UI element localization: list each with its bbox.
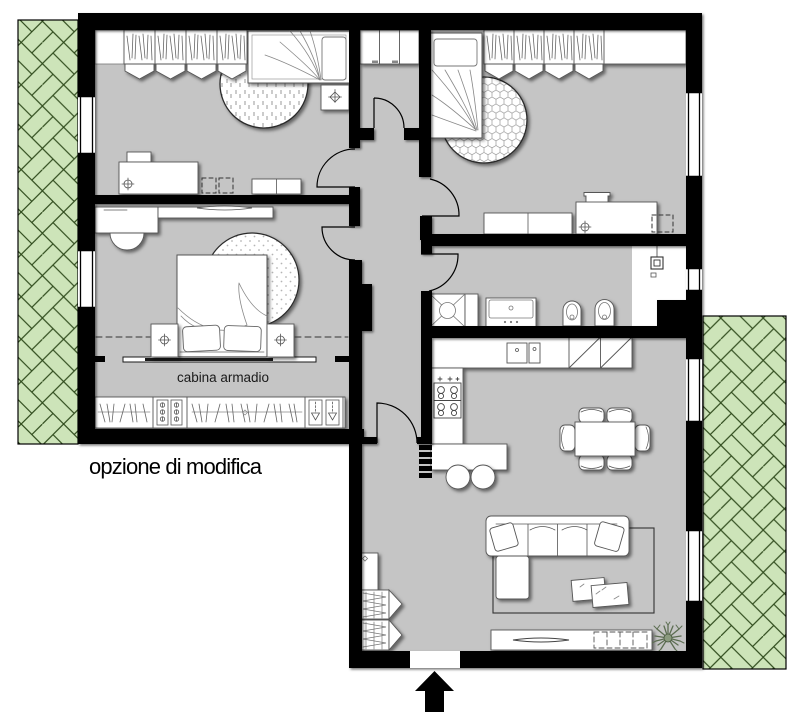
svg-text:cabina armadio: cabina armadio [177,370,269,385]
svg-text:opzione di modifica: opzione di modifica [89,454,263,479]
